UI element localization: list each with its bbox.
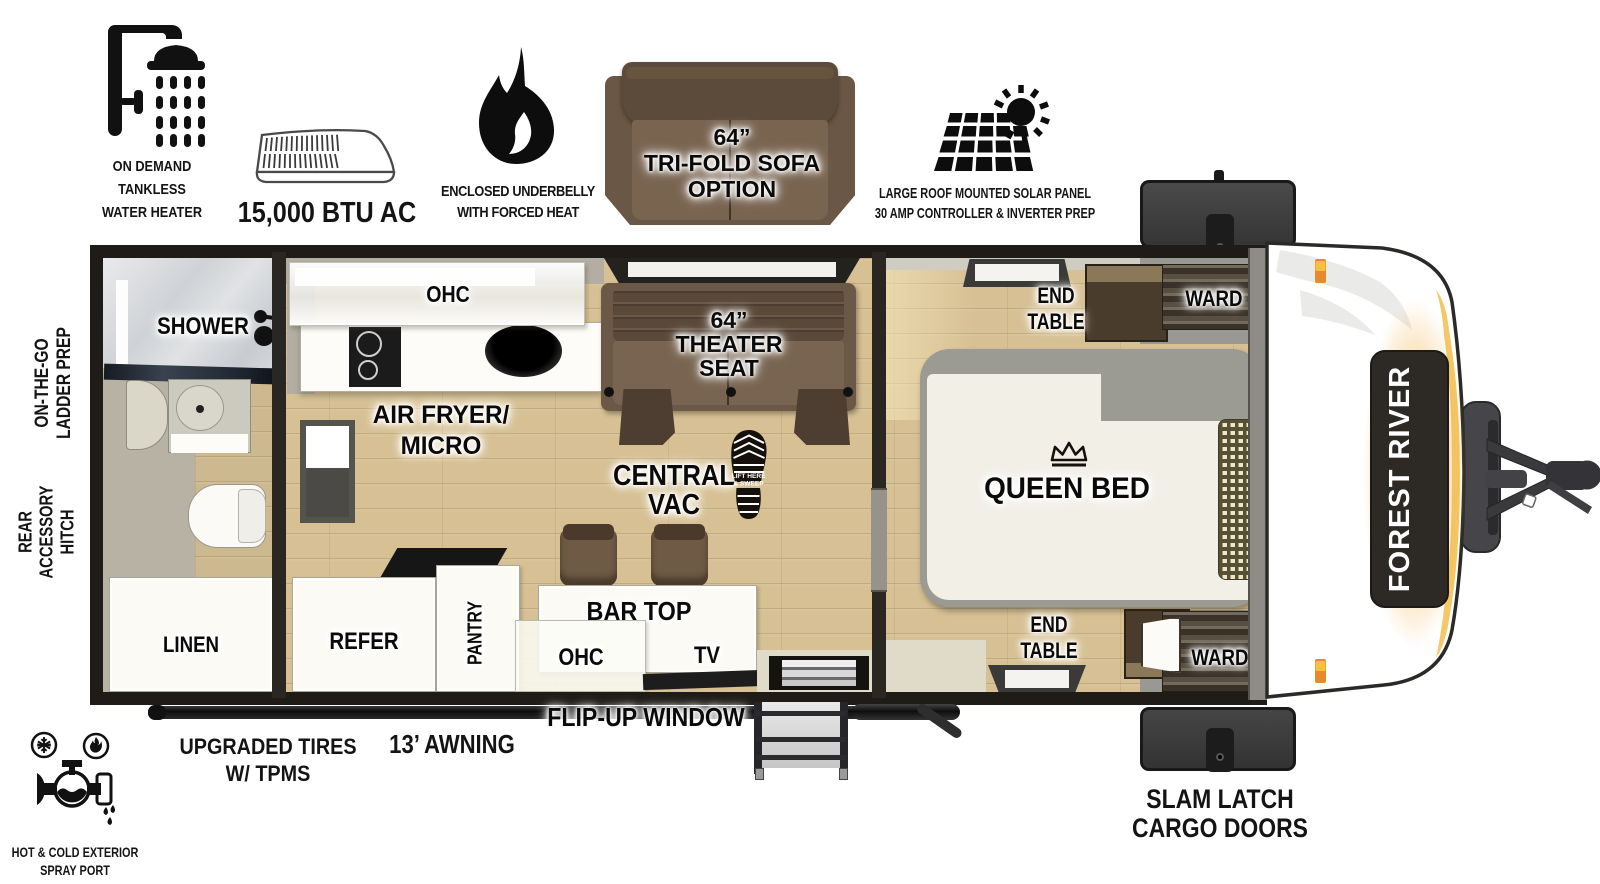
svg-text:LIFT HERE: LIFT HERE: [731, 473, 766, 480]
svg-text:FOREST RIVER: FOREST RIVER: [1384, 366, 1416, 592]
svg-text:& SWEEP: & SWEEP: [733, 481, 764, 488]
